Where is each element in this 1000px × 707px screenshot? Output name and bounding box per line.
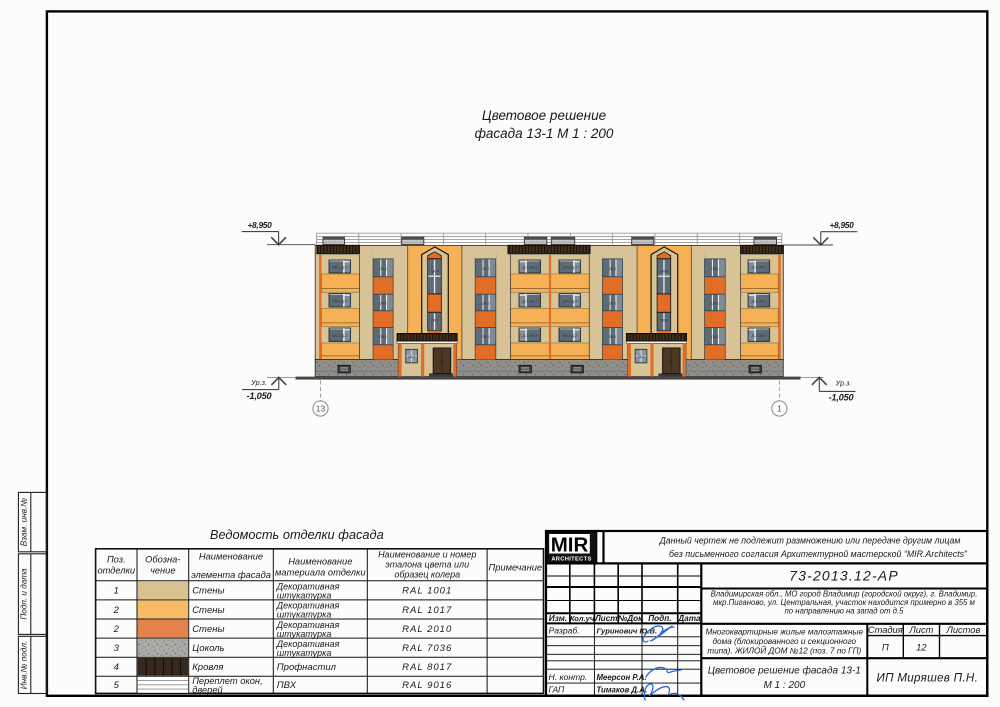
svg-text:Цветовое решение: Цветовое решение	[482, 108, 606, 123]
svg-text:MIR: MIR	[551, 534, 589, 557]
svg-text:Стены: Стены	[192, 586, 224, 597]
svg-text:эталона цвета или: эталона цвета или	[385, 560, 469, 570]
svg-text:Кол.уч: Кол.уч	[570, 614, 595, 623]
svg-text:ОК-1: ОК-1	[711, 267, 719, 271]
svg-text:ОК-2 Д-2: ОК-2 Д-2	[332, 266, 347, 270]
svg-text:-1,050: -1,050	[247, 391, 273, 401]
svg-text:ОК-1: ОК-1	[609, 267, 617, 271]
svg-text:ОК-4: ОК-4	[660, 270, 668, 274]
svg-text:ОК-3: ОК-3	[431, 319, 439, 323]
svg-text:Изм.: Изм.	[549, 614, 567, 623]
svg-text:Д-1: Д-1	[438, 359, 445, 363]
svg-text:Тимаков Д.А.: Тимаков Д.А.	[597, 686, 648, 695]
svg-text:ОК-1: ОК-1	[482, 302, 490, 306]
svg-text:Лист: Лист	[908, 625, 933, 635]
svg-text:образец колера: образец колера	[394, 570, 460, 580]
svg-text:Стены: Стены	[192, 605, 224, 616]
svg-text:ОК-1: ОК-1	[609, 302, 617, 306]
svg-text:RAL 1017: RAL 1017	[402, 605, 452, 616]
svg-text:RAL 1001: RAL 1001	[402, 586, 452, 597]
svg-text:по направлению на запад от д.5: по направлению на запад от д.5	[785, 607, 905, 616]
svg-text:ОК-1: ОК-1	[379, 302, 387, 306]
svg-text:№Док: №Док	[618, 614, 643, 623]
svg-text:Листов: Листов	[945, 625, 980, 635]
svg-text:штукатурка: штукатурка	[277, 591, 332, 601]
svg-text:3: 3	[114, 643, 120, 654]
svg-text:Д-1 ОК-2: Д-1 ОК-2	[521, 299, 537, 303]
svg-text:Инв.№ подл.: Инв.№ подл.	[20, 641, 29, 690]
svg-text:Профнастил: Профнастил	[277, 662, 337, 673]
svg-text:73-2013.12-АР: 73-2013.12-АР	[789, 568, 899, 584]
svg-text:ОК-1: ОК-1	[711, 302, 719, 306]
svg-text:ОК-1: ОК-1	[482, 267, 490, 271]
svg-text:4: 4	[114, 662, 119, 673]
svg-text:ПВХ: ПВХ	[277, 680, 297, 691]
svg-text:Данный чертеж не подлежит разм: Данный чертеж не подлежит размножению ил…	[659, 536, 961, 546]
svg-text:дома (блокированного и секцион: дома (блокированного и секционного	[713, 637, 857, 646]
svg-text:М 1 : 200: М 1 : 200	[763, 680, 805, 691]
svg-text:Взам. инв.№: Взам. инв.№	[20, 498, 29, 546]
svg-text:Меерсон Р.А.: Меерсон Р.А.	[597, 673, 647, 682]
svg-text:1: 1	[777, 404, 782, 414]
svg-text:ОК-1: ОК-1	[379, 267, 387, 271]
svg-text:Стены: Стены	[192, 624, 224, 635]
svg-text:Лист: Лист	[594, 614, 617, 623]
svg-text:RAL 7036: RAL 7036	[402, 643, 452, 654]
svg-text:Многоквартирные жилые малоэтаж: Многоквартирные жилые малоэтажные	[706, 628, 864, 637]
svg-text:Д-1 ОК-2: Д-1 ОК-2	[521, 266, 537, 270]
svg-text:ОК-6: ОК-6	[637, 355, 644, 359]
svg-text:П: П	[882, 643, 889, 654]
svg-text:Наименование: Наименование	[199, 552, 263, 562]
svg-text:5: 5	[114, 680, 120, 691]
svg-text:Кровля: Кровля	[192, 662, 223, 673]
svg-text:Наименование: Наименование	[288, 557, 352, 567]
svg-text:Наименование и номер: Наименование и номер	[378, 550, 476, 560]
svg-text:12: 12	[916, 643, 927, 654]
svg-text:1: 1	[114, 586, 119, 597]
svg-text:ОК-1: ОК-1	[379, 335, 387, 339]
svg-text:материала отделки: материала отделки	[275, 568, 365, 578]
svg-text:Ур.з.: Ур.з.	[250, 378, 267, 387]
svg-text:-1,050: -1,050	[829, 393, 855, 403]
svg-text:Д-1 ОК-2: Д-1 ОК-2	[521, 334, 537, 338]
svg-text:+8,950: +8,950	[829, 220, 854, 230]
svg-text:ОК-2 Д-2: ОК-2 Д-2	[332, 334, 347, 338]
svg-text:RAL 9016: RAL 9016	[402, 680, 452, 691]
svg-text:ОК-1: ОК-1	[711, 335, 719, 339]
svg-text:чение: чение	[150, 566, 175, 576]
svg-text:ARCHITECTS: ARCHITECTS	[551, 556, 591, 562]
svg-text:отделки: отделки	[97, 566, 135, 576]
svg-text:без письменного согласия Архит: без письменного согласия Архитектурной м…	[669, 549, 968, 559]
svg-text:ОК-2 Д-2: ОК-2 Д-2	[562, 299, 577, 303]
svg-text:штукатурка: штукатурка	[277, 629, 332, 639]
svg-text:штукатурка: штукатурка	[277, 610, 332, 620]
svg-text:Д-2 ОК-2: Д-2 ОК-2	[750, 334, 766, 338]
svg-text:Н. контр.: Н. контр.	[549, 672, 588, 682]
svg-text:дверей: дверей	[192, 685, 222, 695]
svg-text:ОК-2 Д-2: ОК-2 Д-2	[562, 334, 577, 338]
svg-text:Примечание: Примечание	[489, 563, 543, 573]
svg-text:Цоколь: Цоколь	[192, 643, 224, 654]
svg-text:Дата: Дата	[677, 614, 701, 623]
svg-text:2: 2	[113, 605, 120, 616]
svg-text:Д-1: Д-1	[668, 359, 675, 363]
svg-text:ОК-1: ОК-1	[609, 335, 617, 339]
svg-text:ОК-2 Д-2: ОК-2 Д-2	[332, 299, 347, 303]
svg-text:+8,950: +8,950	[247, 220, 272, 230]
svg-text:ОК-3: ОК-3	[660, 319, 668, 323]
svg-text:RAL 8017: RAL 8017	[402, 662, 452, 673]
svg-text:ОК-4: ОК-4	[431, 270, 439, 274]
svg-text:фасада 13-1 М 1 : 200: фасада 13-1 М 1 : 200	[475, 126, 614, 141]
svg-text:Стадия: Стадия	[868, 625, 903, 635]
svg-text:Обозна-: Обозна-	[145, 555, 180, 565]
svg-text:элемента фасада: элемента фасада	[191, 570, 271, 580]
svg-text:Ведомость отделки фасада: Ведомость отделки фасада	[210, 527, 384, 542]
svg-text:13: 13	[316, 404, 326, 414]
svg-text:ОК-2 Д-2: ОК-2 Д-2	[562, 266, 577, 270]
svg-text:Разраб.: Разраб.	[549, 626, 580, 636]
svg-text:Подп. и дата: Подп. и дата	[20, 568, 29, 620]
svg-text:штукатурка: штукатурка	[277, 648, 332, 658]
svg-text:RAL 2010: RAL 2010	[402, 624, 452, 635]
svg-text:ГАП: ГАП	[549, 685, 566, 695]
svg-text:типа). ЖИЛОЙ ДОМ №12 (поз. 7 п: типа). ЖИЛОЙ ДОМ №12 (поз. 7 по ГП)	[707, 645, 861, 656]
svg-text:2: 2	[113, 624, 120, 635]
svg-text:ОК-1: ОК-1	[482, 335, 490, 339]
svg-text:Цветовое решение фасада 13-1: Цветовое решение фасада 13-1	[708, 665, 861, 677]
svg-text:ИП Миряшев П.Н.: ИП Миряшев П.Н.	[877, 672, 979, 685]
svg-text:Д-2 ОК-2: Д-2 ОК-2	[750, 299, 766, 303]
svg-text:ОК-6: ОК-6	[408, 355, 415, 359]
svg-text:Д-2 ОК-2: Д-2 ОК-2	[750, 266, 766, 270]
svg-text:Поз.: Поз.	[107, 555, 126, 565]
svg-text:Ур.з.: Ур.з.	[835, 378, 852, 387]
svg-text:Подп.: Подп.	[648, 614, 671, 623]
